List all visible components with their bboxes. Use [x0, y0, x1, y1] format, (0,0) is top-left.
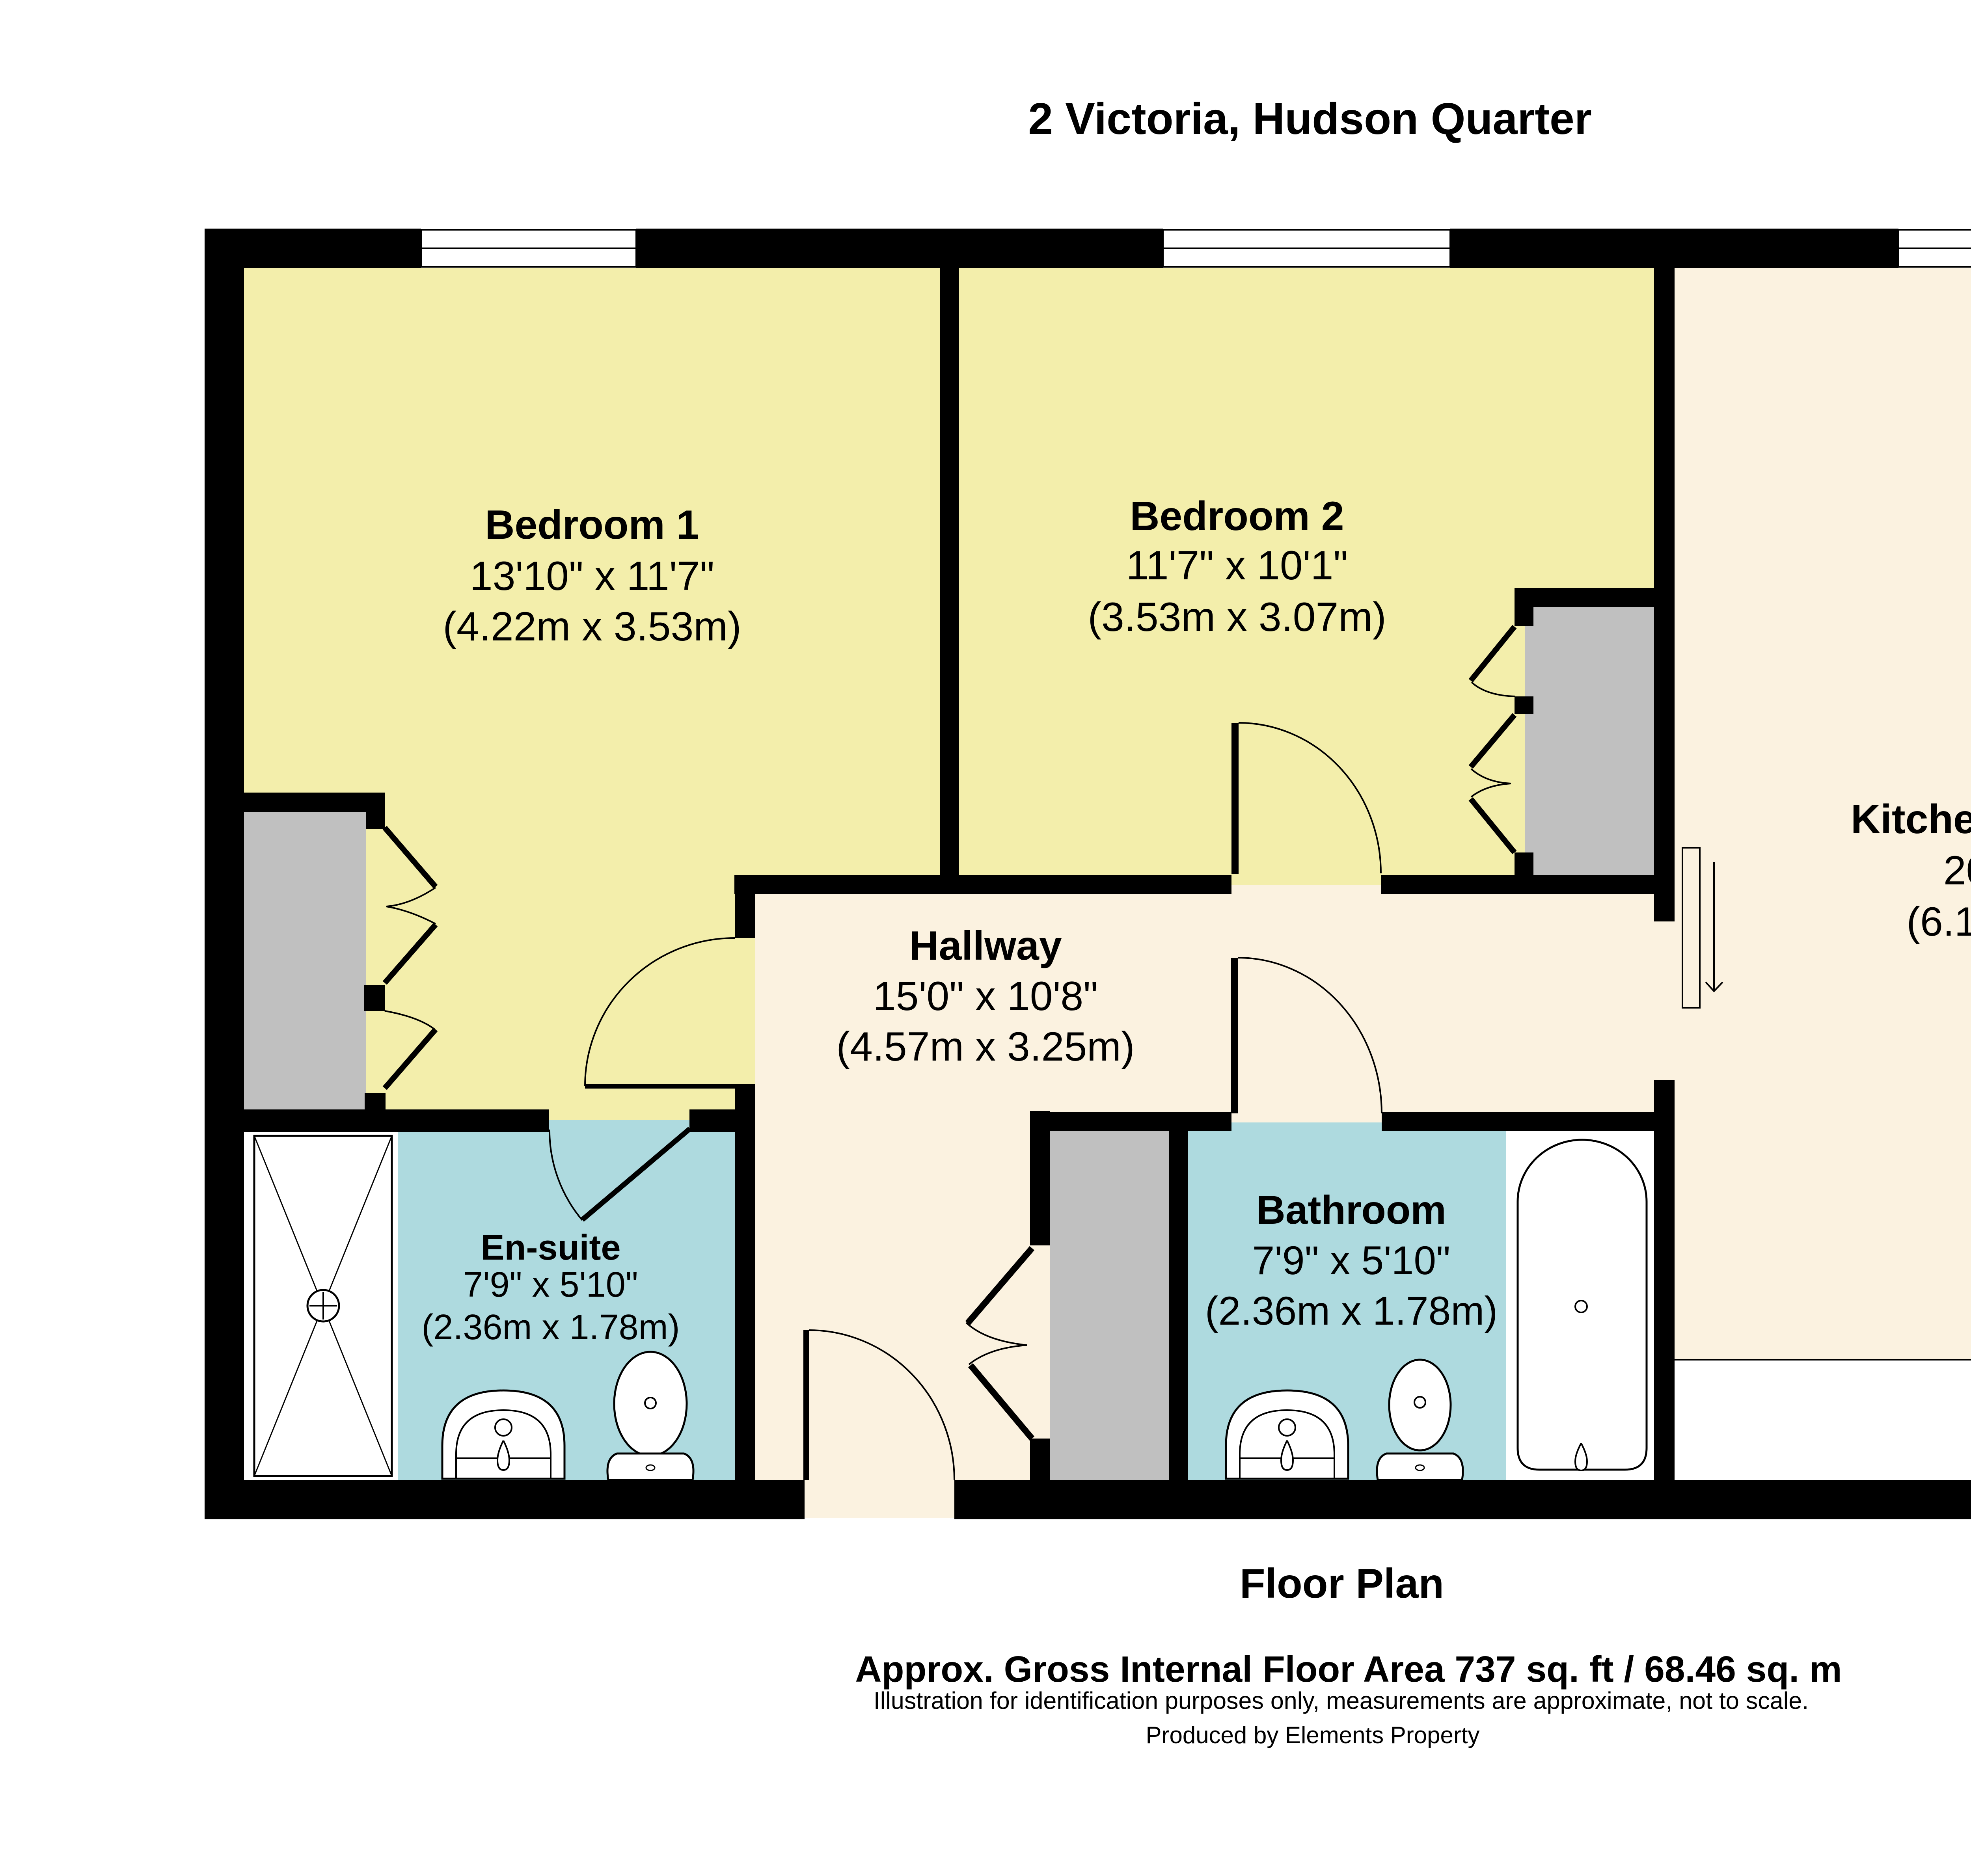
svg-text:Bedroom 2: Bedroom 2 — [1130, 493, 1344, 539]
svg-text:Bathroom: Bathroom — [1256, 1187, 1446, 1232]
svg-text:Floor Plan: Floor Plan — [1240, 1560, 1444, 1607]
svg-text:(4.57m x 3.25m): (4.57m x 3.25m) — [836, 1024, 1135, 1070]
svg-text:11'7" x 10'1": 11'7" x 10'1" — [1126, 543, 1348, 588]
svg-text:7'9" x 5'10": 7'9" x 5'10" — [1252, 1238, 1451, 1283]
svg-text:13'10" x 11'7": 13'10" x 11'7" — [470, 553, 715, 599]
svg-text:(2.36m x 1.78m): (2.36m x 1.78m) — [421, 1308, 680, 1347]
svg-text:(4.22m x 3.53m): (4.22m x 3.53m) — [443, 604, 741, 650]
svg-text:(3.53m x 3.07m): (3.53m x 3.07m) — [1088, 594, 1386, 640]
svg-text:20'2" x 12'9": 20'2" x 12'9" — [1943, 848, 1971, 893]
svg-text:(2.36m x 1.78m): (2.36m x 1.78m) — [1205, 1288, 1498, 1333]
svg-text:(6.15m x 3.89m): (6.15m x 3.89m) — [1906, 899, 1971, 945]
svg-text:En-suite: En-suite — [481, 1228, 620, 1267]
svg-text:Produced by Elements Property: Produced by Elements Property — [1146, 1722, 1479, 1748]
svg-text:15'0" x 10'8": 15'0" x 10'8" — [873, 973, 1098, 1019]
svg-text:Bedroom 1: Bedroom 1 — [485, 502, 699, 548]
svg-text:Approx. Gross Internal Floor A: Approx. Gross Internal Floor Area 737 sq… — [855, 1649, 1842, 1690]
svg-text:Kitchen/Living Room: Kitchen/Living Room — [1851, 797, 1971, 842]
svg-text:2 Victoria, Hudson Quarter: 2 Victoria, Hudson Quarter — [1028, 94, 1592, 143]
svg-text:7'9" x 5'10": 7'9" x 5'10" — [463, 1265, 638, 1305]
svg-text:Illustration for identificatio: Illustration for identification purposes… — [874, 1687, 1809, 1714]
svg-text:Hallway: Hallway — [909, 923, 1062, 969]
